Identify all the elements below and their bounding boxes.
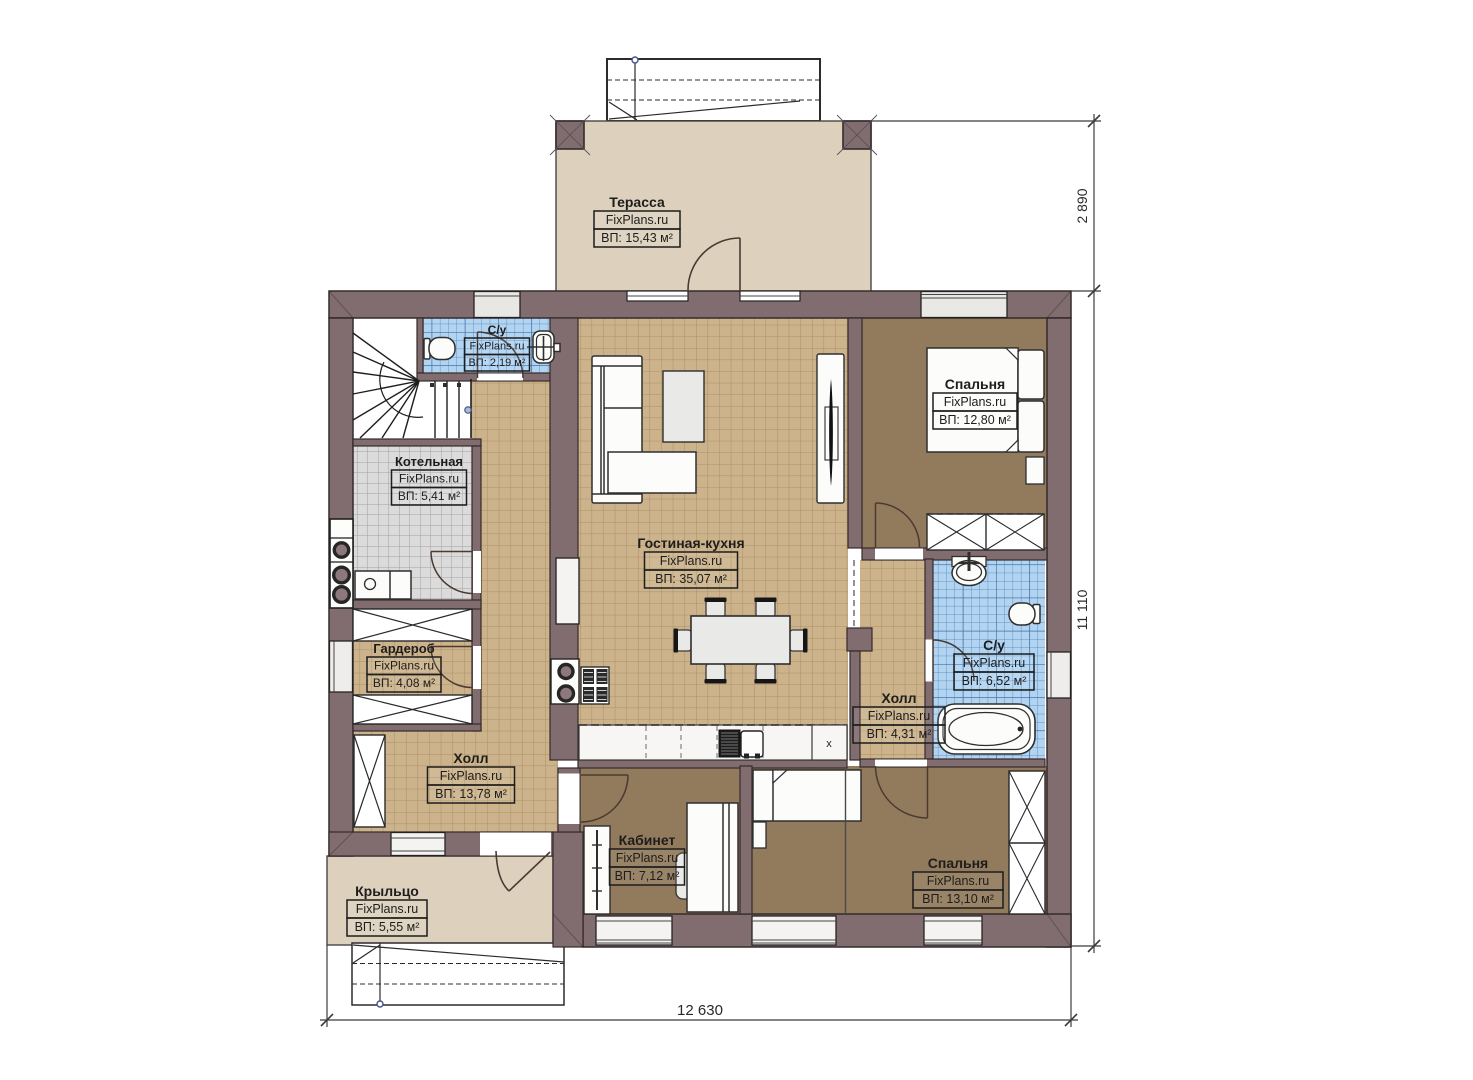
svg-text:Спальня: Спальня [945, 376, 1005, 392]
svg-text:Крыльцо: Крыльцо [355, 883, 419, 899]
svg-text:FixPlans.ru: FixPlans.ru [469, 341, 524, 353]
svg-text:2 890: 2 890 [1074, 188, 1090, 223]
svg-text:ВП: 35,07 м²: ВП: 35,07 м² [655, 572, 727, 586]
svg-text:FixPlans.ru: FixPlans.ru [399, 472, 459, 486]
svg-text:x: x [826, 738, 832, 750]
svg-text:Кабинет: Кабинет [619, 832, 676, 848]
svg-text:ВП: 12,80 м²: ВП: 12,80 м² [939, 413, 1011, 427]
svg-text:FixPlans.ru: FixPlans.ru [606, 213, 669, 227]
svg-text:Спальня: Спальня [928, 855, 988, 871]
svg-text:FixPlans.ru: FixPlans.ru [374, 659, 434, 673]
svg-text:Холл: Холл [453, 750, 488, 766]
svg-text:FixPlans.ru: FixPlans.ru [927, 874, 990, 888]
svg-text:FixPlans.ru: FixPlans.ru [944, 395, 1007, 409]
svg-text:Котельная: Котельная [395, 454, 463, 469]
svg-text:Гардероб: Гардероб [373, 641, 434, 656]
svg-text:FixPlans.ru: FixPlans.ru [616, 851, 679, 865]
svg-text:FixPlans.ru: FixPlans.ru [660, 554, 723, 568]
svg-text:FixPlans.ru: FixPlans.ru [440, 769, 503, 783]
svg-text:FixPlans.ru: FixPlans.ru [356, 902, 419, 916]
svg-text:ВП: 13,78 м²: ВП: 13,78 м² [435, 787, 507, 801]
svg-text:FixPlans.ru: FixPlans.ru [868, 709, 931, 723]
svg-text:Гостиная-кухня: Гостиная-кухня [637, 535, 744, 551]
svg-text:С/у: С/у [983, 637, 1005, 653]
svg-text:ВП: 5,41 м²: ВП: 5,41 м² [398, 489, 460, 503]
svg-text:FixPlans.ru: FixPlans.ru [963, 656, 1026, 670]
svg-text:ВП: 13,10 м²: ВП: 13,10 м² [922, 892, 994, 906]
svg-text:ВП: 4,31 м²: ВП: 4,31 м² [867, 727, 932, 741]
svg-text:С/у: С/у [488, 323, 507, 337]
svg-text:11 110: 11 110 [1074, 589, 1090, 630]
svg-text:Терасса: Терасса [609, 194, 665, 210]
svg-text:ВП: 5,55 м²: ВП: 5,55 м² [355, 920, 420, 934]
svg-text:12 630: 12 630 [677, 1002, 723, 1019]
svg-text:ВП: 15,43 м²: ВП: 15,43 м² [601, 231, 673, 245]
svg-text:ВП: 2,19 м²: ВП: 2,19 м² [468, 357, 525, 369]
svg-text:Холл: Холл [881, 690, 916, 706]
svg-text:ВП: 4,08 м²: ВП: 4,08 м² [373, 676, 435, 690]
svg-text:ВП: 7,12 м²: ВП: 7,12 м² [615, 869, 680, 883]
svg-text:ВП: 6,52 м²: ВП: 6,52 м² [962, 674, 1027, 688]
